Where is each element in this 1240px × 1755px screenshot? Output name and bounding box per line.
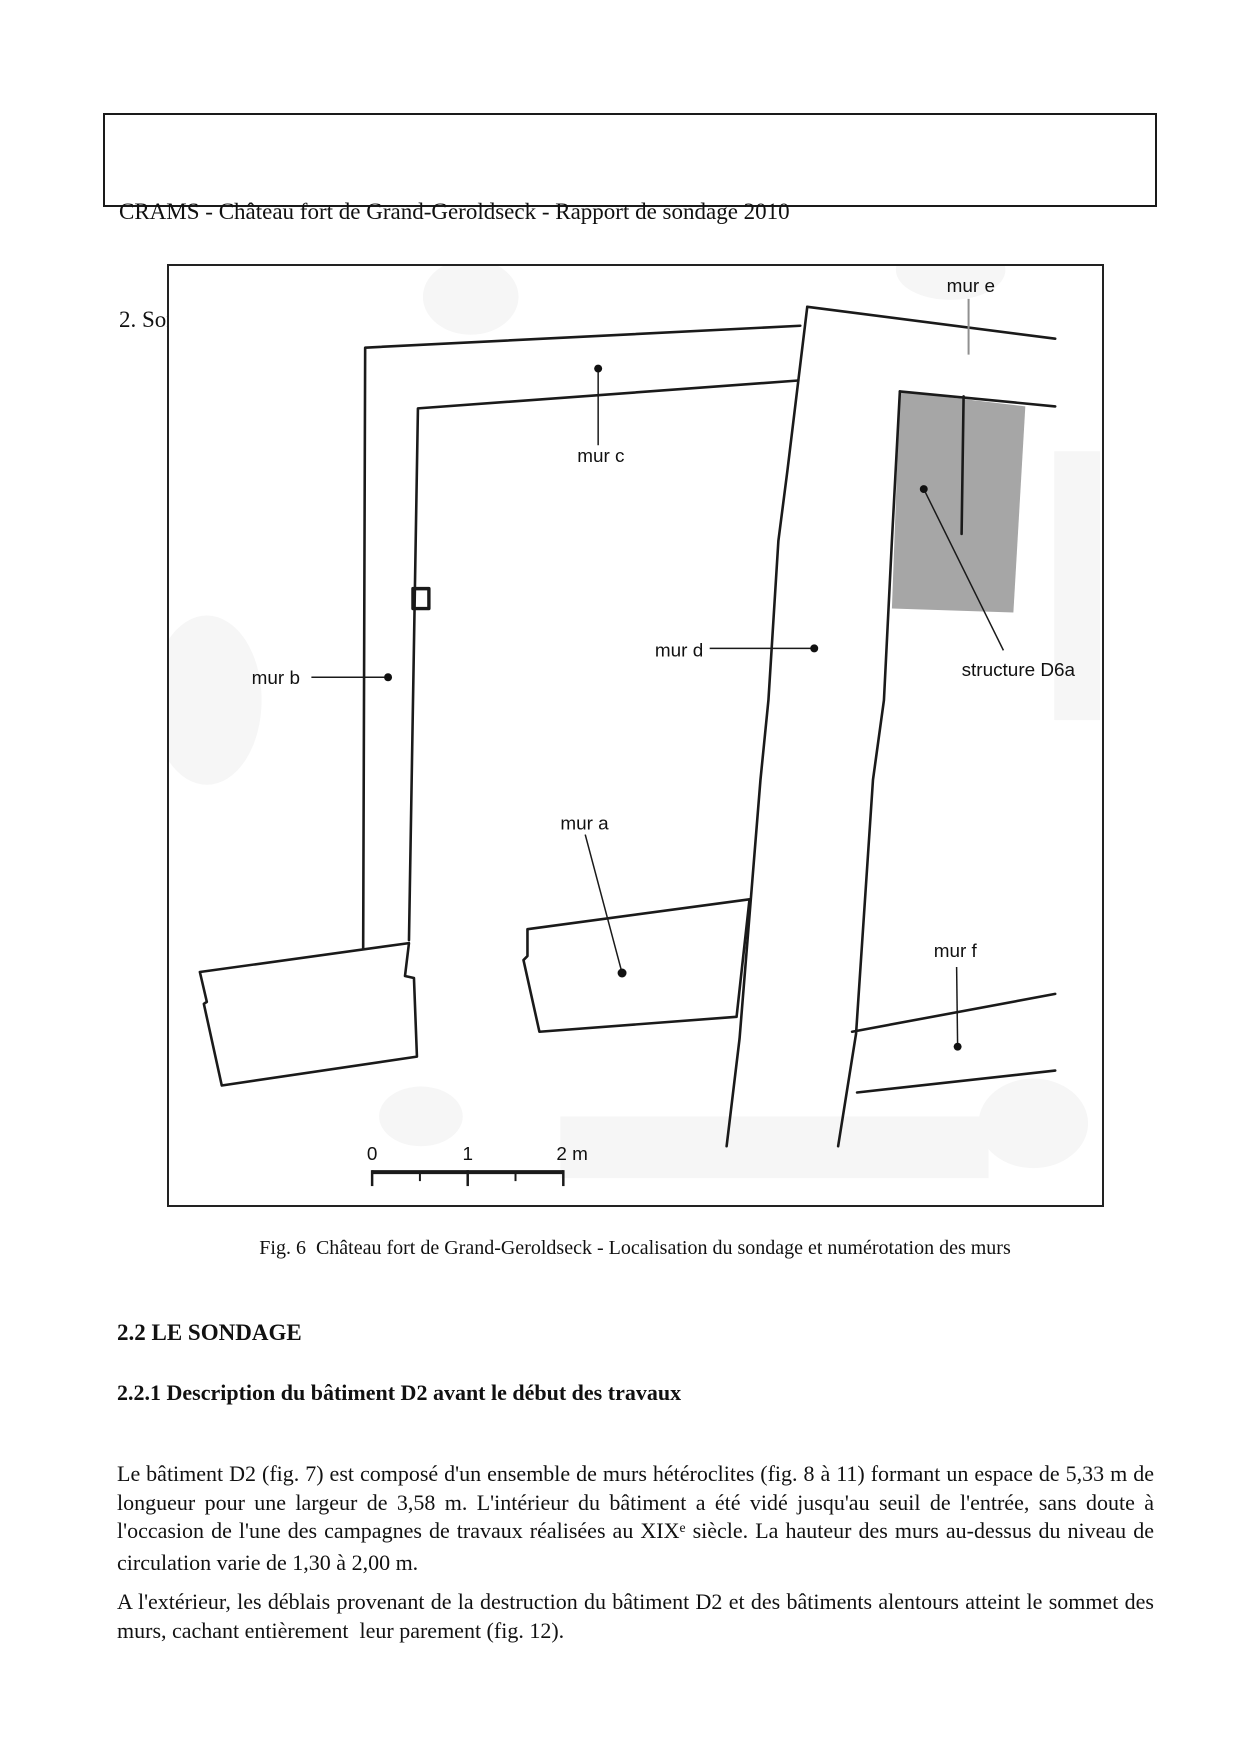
section-heading: 2.2 LE SONDAGE	[117, 1320, 302, 1346]
figure-caption: Fig. 6 Château fort de Grand-Geroldseck …	[135, 1237, 1135, 1260]
mur-f-dot	[954, 1043, 962, 1051]
structure-d6a-dot	[920, 485, 928, 493]
mur-b-c-outer-line	[363, 326, 800, 949]
mur-a-pointer	[585, 835, 622, 973]
building-block-outline	[200, 943, 417, 1085]
mur-c-dot	[594, 365, 602, 373]
structure-d6a-area	[892, 391, 1025, 612]
mur-f-upper-line	[852, 994, 1055, 1032]
structure-d6a-label: structure D6a	[962, 660, 1076, 681]
mur-b-label: mur b	[252, 668, 300, 689]
report-header-box: CRAMS - Château fort de Grand-Geroldseck…	[103, 113, 1157, 207]
scale-2m-label: 2 m	[556, 1144, 588, 1165]
document-page: CRAMS - Château fort de Grand-Geroldseck…	[0, 0, 1240, 1755]
mur-c-label: mur c	[577, 446, 624, 467]
site-plan-svg: mur e mur c mur b mur d structure D6a mu…	[169, 266, 1102, 1205]
pointer-dots	[384, 365, 962, 1051]
header-line-1: CRAMS - Château fort de Grand-Geroldseck…	[119, 194, 1155, 230]
mur-b-dot	[384, 673, 392, 681]
mur-e-label: mur e	[947, 276, 995, 297]
mur-f-pointer	[957, 967, 958, 1047]
mur-d-left-line	[727, 307, 808, 1146]
body-paragraph-2: A l'extérieur, les déblais provenant de …	[117, 1588, 1154, 1645]
subsection-heading: 2.2.1 Description du bâtiment D2 avant l…	[117, 1380, 681, 1406]
mur-d-right-line	[838, 391, 900, 1146]
mur-a-dot	[618, 969, 627, 978]
mur-a-outline	[523, 899, 749, 1031]
scale-1-label: 1	[462, 1144, 473, 1165]
scale-bar-lines	[372, 1170, 563, 1186]
scale-bar: 0 1 2 m	[367, 1144, 588, 1186]
site-plan-figure: mur e mur c mur b mur d structure D6a mu…	[167, 264, 1104, 1207]
mur-d-dot	[810, 644, 818, 652]
mur-f-label: mur f	[934, 941, 978, 962]
mur-a-label: mur a	[560, 814, 609, 835]
paragraph-1-superscript: e	[679, 1520, 685, 1535]
mur-d-label: mur d	[655, 640, 703, 661]
scale-0-label: 0	[367, 1144, 378, 1165]
mur-e-outer-line	[807, 307, 1055, 339]
body-paragraph-1: Le bâtiment D2 (fig. 7) est composé d'un…	[117, 1460, 1154, 1578]
